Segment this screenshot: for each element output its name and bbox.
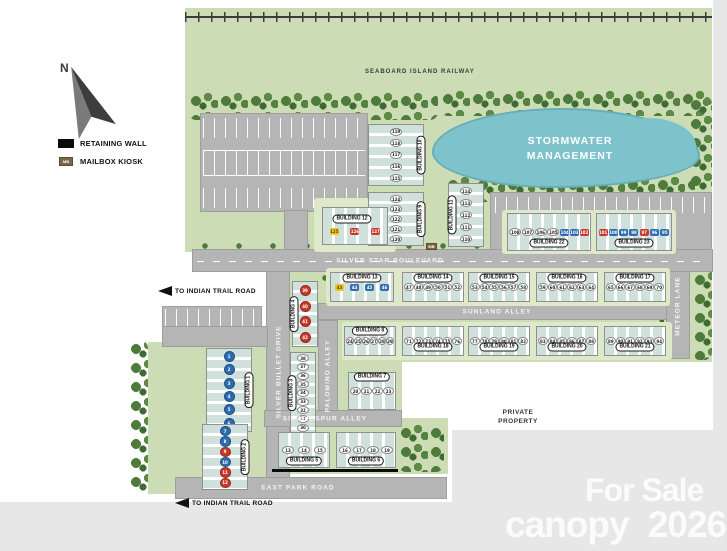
unit-badge-103: 103 bbox=[570, 229, 579, 236]
unit-badge-100: 100 bbox=[609, 229, 618, 236]
unit-badge-27: 27 bbox=[370, 337, 378, 345]
gray-margin-right bbox=[713, 0, 727, 551]
unit-badge-28: 28 bbox=[378, 337, 386, 345]
unit-badge-102: 102 bbox=[580, 229, 589, 236]
unit-badge-57: 57 bbox=[509, 283, 519, 291]
unit-badge-3: 3 bbox=[224, 378, 235, 389]
railway-label: SEABOARD ISLAND RAILWAY bbox=[365, 69, 475, 75]
building-12-label: BUILDING 12 bbox=[332, 215, 371, 224]
unit-badge-122: 122 bbox=[390, 215, 402, 223]
road-label-meteor-lane: METEOR LANE bbox=[675, 276, 682, 335]
mailbox-kiosk-marker: MB bbox=[426, 243, 437, 250]
unit-badge-70: 70 bbox=[654, 283, 664, 291]
watermark-brand-year: canopy 2026 bbox=[505, 504, 726, 546]
unit-badge-16: 16 bbox=[339, 446, 351, 454]
unit-badge-21: 21 bbox=[361, 387, 372, 395]
unit-badge-126: 126 bbox=[350, 228, 359, 235]
unit-badge-45: 45 bbox=[365, 284, 374, 291]
unit-badge-33: 33 bbox=[297, 398, 309, 406]
west-arrow-icon bbox=[158, 286, 172, 296]
direction-south-label: TO INDIAN TRAIL ROAD bbox=[192, 500, 273, 507]
legend-retaining-wall-swatch bbox=[58, 139, 74, 148]
unit-badge-113: 113 bbox=[460, 199, 472, 207]
building-20: 838485868788 bbox=[536, 326, 598, 356]
unit-badge-123: 123 bbox=[390, 205, 402, 213]
pond-label-line2: MANAGEMENT bbox=[500, 149, 640, 164]
unit-badge-83: 83 bbox=[538, 337, 548, 345]
unit-badge-13: 13 bbox=[282, 446, 294, 454]
unit-badge-99: 99 bbox=[619, 229, 628, 236]
unit-badge-64: 64 bbox=[586, 283, 596, 291]
parking-stalls-row bbox=[165, 309, 261, 326]
unit-badge-1: 1 bbox=[224, 351, 235, 362]
unit-badge-32: 32 bbox=[297, 406, 309, 414]
unit-badge-4: 4 bbox=[224, 391, 235, 402]
direction-west: TO INDIAN TRAIL ROAD bbox=[158, 286, 256, 296]
unit-badge-35: 35 bbox=[297, 380, 309, 388]
unit-badge-69: 69 bbox=[645, 283, 655, 291]
unit-badge-7: 7 bbox=[220, 426, 231, 436]
unit-badge-20: 20 bbox=[350, 387, 361, 395]
unit-badge-65: 65 bbox=[606, 283, 616, 291]
private-property-line1: PRIVATE bbox=[488, 408, 548, 417]
unit-badge-5: 5 bbox=[224, 404, 235, 415]
unit-badge-61: 61 bbox=[557, 283, 567, 291]
unit-badge-48: 48 bbox=[414, 283, 424, 291]
unit-badge-10: 10 bbox=[220, 457, 231, 467]
road-label-silver-bullet-drive: SILVER BULLET DRIVE bbox=[276, 325, 283, 418]
site-plan-canvas: SEABOARD ISLAND RAILWAY SILVER STAR BOUL… bbox=[0, 0, 727, 551]
road-label-silver-star-boulevard: SILVER STAR BOULEVARD bbox=[336, 258, 444, 265]
building-18-label: BUILDING 18 bbox=[413, 343, 452, 352]
unit-badge-63: 63 bbox=[577, 283, 587, 291]
unit-badge-97: 97 bbox=[640, 229, 649, 236]
unit-badge-30: 30 bbox=[297, 424, 309, 432]
building-1-label: BUILDING 1 bbox=[245, 372, 254, 408]
unit-badge-60: 60 bbox=[548, 283, 558, 291]
unit-badge-15: 15 bbox=[314, 446, 326, 454]
building-19-label: BUILDING 19 bbox=[479, 343, 518, 352]
direction-west-label: TO INDIAN TRAIL ROAD bbox=[175, 288, 256, 295]
unit-badge-26: 26 bbox=[362, 337, 370, 345]
unit-badge-94: 94 bbox=[654, 337, 664, 345]
unit-badge-59: 59 bbox=[538, 283, 548, 291]
unit-badge-58: 58 bbox=[518, 283, 528, 291]
north-letter: N bbox=[60, 61, 69, 75]
unit-badge-118: 118 bbox=[390, 139, 402, 147]
unit-badge-46: 46 bbox=[380, 284, 389, 291]
building-23-label: BUILDING 23 bbox=[614, 239, 653, 248]
building-12: 125126127 bbox=[322, 207, 388, 245]
building-13-label: BUILDING 13 bbox=[342, 274, 381, 283]
private-property-line2: PROPERTY bbox=[488, 417, 548, 426]
building-22-label: BUILDING 22 bbox=[529, 239, 568, 248]
unit-badge-55: 55 bbox=[489, 283, 499, 291]
unit-badge-111: 111 bbox=[460, 223, 472, 231]
unit-badge-11: 11 bbox=[220, 467, 231, 477]
unit-badge-9: 9 bbox=[220, 447, 231, 457]
unit-badge-67: 67 bbox=[625, 283, 635, 291]
unit-badge-25: 25 bbox=[354, 337, 362, 345]
unit-badge-29: 29 bbox=[386, 337, 394, 345]
legend-retaining-wall-label: RETAINING WALL bbox=[80, 139, 147, 148]
unit-badge-96: 96 bbox=[650, 229, 659, 236]
unit-badge-66: 66 bbox=[616, 283, 626, 291]
private-property-note: PRIVATE PROPERTY bbox=[488, 408, 548, 426]
road-west-connector bbox=[162, 326, 268, 347]
unit-badge-49: 49 bbox=[423, 283, 433, 291]
building-7-label: BUILDING 7 bbox=[354, 373, 390, 382]
unit-badge-121: 121 bbox=[390, 225, 402, 233]
building-21-label: BUILDING 21 bbox=[615, 343, 654, 352]
unit-badge-76: 76 bbox=[452, 337, 462, 345]
unit-badge-71: 71 bbox=[404, 337, 414, 345]
unit-badge-124: 124 bbox=[390, 195, 402, 203]
unit-badge-62: 62 bbox=[567, 283, 577, 291]
building-8-label: BUILDING 8 bbox=[352, 327, 388, 336]
road-label-silver-spur-alley: SILVER SPUR ALLEY bbox=[283, 416, 367, 423]
building-9-label: BUILDING 9 bbox=[417, 201, 426, 237]
unit-badge-112: 112 bbox=[460, 211, 472, 219]
unit-badge-38: 38 bbox=[297, 354, 309, 362]
unit-badge-107: 107 bbox=[522, 228, 534, 236]
building-4-label: BUILDING 4 bbox=[290, 296, 299, 332]
unit-badge-125: 125 bbox=[330, 228, 339, 235]
unit-badge-36: 36 bbox=[297, 372, 309, 380]
unit-badge-8: 8 bbox=[220, 436, 231, 446]
retaining-wall bbox=[272, 469, 398, 472]
unit-badge-116: 116 bbox=[390, 163, 402, 171]
road-label-palomino-alley: PALOMINO ALLEY bbox=[325, 340, 332, 413]
road-centerline bbox=[197, 261, 707, 262]
parking-west bbox=[162, 306, 262, 327]
road-label-sunland-alley: SUNLAND ALLEY bbox=[463, 309, 532, 316]
building-6-label: BUILDING 6 bbox=[348, 457, 384, 466]
unit-badge-12: 12 bbox=[220, 478, 231, 488]
unit-badge-47: 47 bbox=[404, 283, 414, 291]
unit-badge-44: 44 bbox=[350, 284, 359, 291]
unit-badge-37: 37 bbox=[297, 363, 309, 371]
building-20-label: BUILDING 20 bbox=[547, 343, 586, 352]
building-10-label: BUILDING 10 bbox=[417, 135, 426, 174]
unit-badge-108: 108 bbox=[509, 228, 521, 236]
unit-badge-104: 104 bbox=[560, 229, 569, 236]
unit-badge-54: 54 bbox=[480, 283, 490, 291]
building-11-label: BUILDING 11 bbox=[448, 196, 457, 235]
building-10-units: 119118117116115 bbox=[370, 126, 422, 184]
unit-badge-50: 50 bbox=[433, 283, 443, 291]
unit-badge-51: 51 bbox=[443, 283, 453, 291]
unit-badge-52: 52 bbox=[452, 283, 462, 291]
parking-connector bbox=[284, 210, 308, 250]
building-5-label: BUILDING 5 bbox=[286, 457, 322, 466]
unit-badge-17: 17 bbox=[353, 446, 365, 454]
building-19: 777879808182 bbox=[468, 326, 530, 356]
pond-label-line1: STORMWATER bbox=[500, 134, 640, 149]
unit-badge-14: 14 bbox=[298, 446, 310, 454]
legend-mailbox-swatch: MB bbox=[59, 157, 73, 166]
unit-badge-106: 106 bbox=[535, 228, 547, 236]
unit-badge-127: 127 bbox=[371, 228, 380, 235]
parking-stalls-row bbox=[203, 150, 365, 176]
building-2-label: BUILDING 2 bbox=[241, 439, 250, 475]
unit-badge-98: 98 bbox=[629, 229, 638, 236]
road-label-east-park-road: EAST PARK ROAD bbox=[261, 485, 334, 492]
unit-badge-34: 34 bbox=[297, 389, 309, 397]
unit-badge-88: 88 bbox=[586, 337, 596, 345]
watermark-brand: canopy bbox=[505, 504, 629, 545]
unit-badge-82: 82 bbox=[518, 337, 528, 345]
unit-badge-110: 110 bbox=[460, 235, 472, 243]
unit-badge-68: 68 bbox=[635, 283, 645, 291]
unit-badge-19: 19 bbox=[381, 446, 393, 454]
unit-badge-115: 115 bbox=[390, 174, 402, 182]
north-arrow-icon: N bbox=[50, 56, 120, 146]
unit-badge-77: 77 bbox=[470, 337, 480, 345]
unit-badge-114: 114 bbox=[460, 187, 472, 195]
pond-label: STORMWATER MANAGEMENT bbox=[500, 134, 640, 164]
unit-badge-89: 89 bbox=[606, 337, 616, 345]
legend-mailbox-label: MAILBOX KIOSK bbox=[80, 157, 143, 166]
unit-badge-120: 120 bbox=[390, 235, 402, 243]
building-21: 899091929394 bbox=[604, 326, 666, 356]
direction-south: TO INDIAN TRAIL ROAD bbox=[175, 498, 273, 508]
unit-badge-22: 22 bbox=[372, 387, 383, 395]
unit-badge-95: 95 bbox=[660, 229, 669, 236]
watermark-year: 2026 bbox=[648, 504, 726, 545]
building-3-label: BUILDING 3 bbox=[288, 375, 297, 411]
building-14-label: BUILDING 14 bbox=[413, 274, 452, 283]
building-16-label: BUILDING 16 bbox=[547, 274, 586, 283]
unit-badge-18: 18 bbox=[367, 446, 379, 454]
unit-badge-53: 53 bbox=[470, 283, 480, 291]
south-arrow-icon bbox=[175, 498, 189, 508]
unit-badge-23: 23 bbox=[383, 387, 394, 395]
unit-badge-101: 101 bbox=[599, 229, 608, 236]
unit-badge-56: 56 bbox=[499, 283, 509, 291]
unit-badge-24: 24 bbox=[346, 337, 354, 345]
unit-badge-105: 105 bbox=[547, 228, 559, 236]
unit-badge-43: 43 bbox=[335, 284, 344, 291]
building-18: 717273747576 bbox=[402, 326, 464, 356]
unit-badge-40: 40 bbox=[300, 301, 311, 312]
unit-badge-39: 39 bbox=[300, 285, 311, 296]
building-17-label: BUILDING 17 bbox=[615, 274, 654, 283]
unit-badge-2: 2 bbox=[224, 364, 235, 375]
tree-cluster-b6-east bbox=[398, 424, 444, 472]
unit-badge-42: 42 bbox=[300, 332, 311, 343]
railway-line bbox=[185, 16, 712, 18]
unit-badge-41: 41 bbox=[300, 316, 311, 327]
unit-badge-119: 119 bbox=[390, 128, 402, 136]
parking-stalls-row bbox=[203, 118, 365, 138]
building-15-label: BUILDING 15 bbox=[479, 274, 518, 283]
tree-cluster-west-edge bbox=[128, 340, 148, 492]
unit-badge-117: 117 bbox=[390, 151, 402, 159]
